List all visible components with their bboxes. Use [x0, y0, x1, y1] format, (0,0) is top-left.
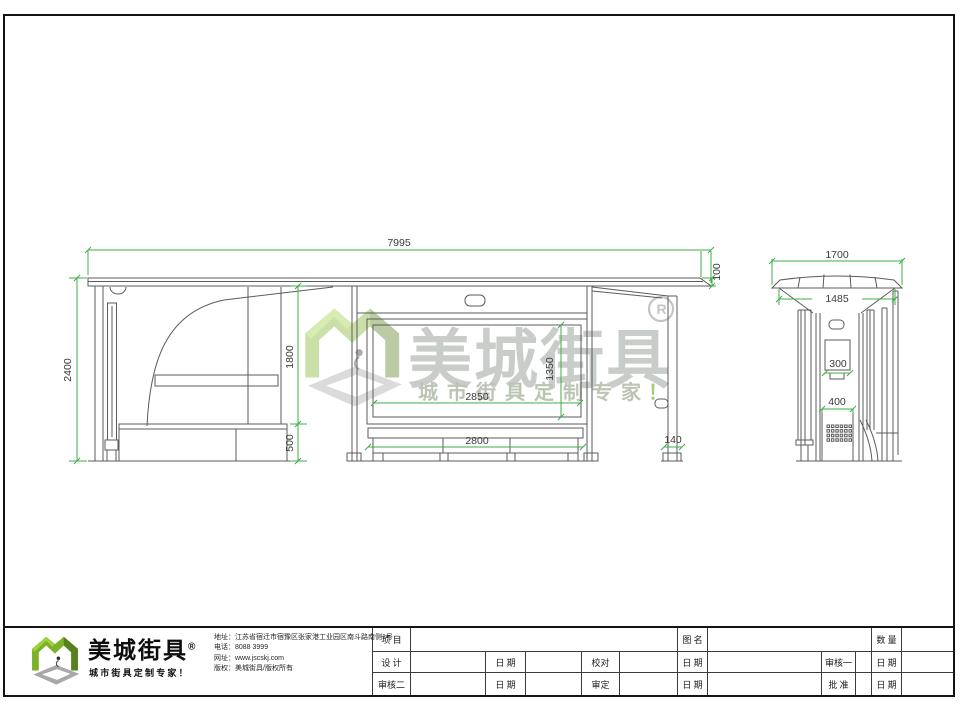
registered-trademark-icon: ® — [188, 641, 195, 652]
company-copyright: 版权：美城街具/版权所有 — [214, 664, 370, 674]
dim-side-base-width: 400 — [828, 396, 846, 408]
company-slogan: 城市街具定制专家！ — [89, 666, 190, 679]
titleblock-value-project — [411, 628, 678, 652]
dim-front-clear-height: 1800 — [284, 345, 296, 369]
dim-bench-width: 2800 — [465, 435, 489, 447]
drawing-sheet: 美城街具 R 城市街具定制专家 ！ — [0, 0, 960, 704]
dim-post-width: 140 — [664, 434, 682, 446]
titleblock-value-design — [411, 652, 486, 673]
copyright-label: 版权： — [214, 664, 235, 674]
dimension-lines — [69, 247, 905, 464]
titleblock-value-date-3 — [902, 652, 953, 673]
titleblock-label-project: 项 目 — [373, 628, 411, 652]
dim-side-body-width: 1485 — [825, 293, 849, 305]
titleblock-label-review-2: 审核二 — [373, 673, 411, 695]
address-label: 地址： — [214, 633, 235, 643]
company-logo — [28, 634, 82, 688]
titleblock-value-date-5 — [708, 673, 822, 695]
titleblock-value-review-1 — [856, 652, 872, 673]
titleblock-value-approval — [856, 673, 872, 695]
dim-ad-panel-width: 2850 — [465, 391, 489, 403]
titleblock-value-proofread — [620, 652, 678, 673]
company-brand-name: 美城街具® — [88, 631, 195, 665]
titleblock-value-quantity — [902, 628, 953, 652]
titleblock-label-review-1: 审核一 — [822, 652, 856, 673]
company-info: 地址：江苏省宿迁市宿豫区张家港工业园区南斗路南侧1号 电话：8088 3999 … — [214, 633, 370, 675]
website-value: www.jscskj.com — [235, 654, 284, 664]
titleblock-value-date-4 — [526, 673, 582, 695]
copyright-value: 美城街具/版权所有 — [235, 664, 293, 674]
dim-front-total-width: 7995 — [387, 237, 411, 249]
titleblock-value-drawing-name — [708, 628, 872, 652]
dim-front-base-height: 500 — [284, 434, 296, 452]
titleblock-label-approval: 批 准 — [822, 673, 856, 695]
title-block: 项 目 图 名 数 量 设 计 日 期 校对 日 期 审核一 日 期 审核二 日… — [372, 628, 953, 695]
titleblock-label-date-2: 日 期 — [678, 652, 708, 673]
titleblock-label-date-6: 日 期 — [872, 673, 902, 695]
titleblock-label-drawing-name: 图 名 — [678, 628, 708, 652]
titleblock-value-review-2 — [411, 673, 486, 695]
titleblock-label-date-4: 日 期 — [486, 673, 526, 695]
dim-front-total-height: 2400 — [62, 358, 74, 382]
cad-drawing: 7995 2400 1800 500 100 2850 1350 2800 14… — [0, 0, 960, 704]
titleblock-label-proofread: 校对 — [582, 652, 620, 673]
titleblock-label-approve-check: 审定 — [582, 673, 620, 695]
phone-label: 电话： — [214, 643, 235, 653]
company-website: 网址：www.jscskj.com — [214, 654, 370, 664]
titleblock-value-approve-check — [620, 673, 678, 695]
titleblock-label-date-5: 日 期 — [678, 673, 708, 695]
titleblock-label-quantity: 数 量 — [872, 628, 902, 652]
phone-value: 8088 3999 — [235, 643, 268, 653]
titleblock-label-date-3: 日 期 — [872, 652, 902, 673]
address-value: 江苏省宿迁市宿豫区张家港工业园区南斗路南侧1号 — [235, 633, 393, 643]
dimension-labels: 7995 2400 1800 500 100 2850 1350 2800 14… — [62, 237, 849, 452]
company-brand-text: 美城街具 — [88, 637, 188, 663]
titleblock-value-date-2 — [708, 652, 822, 673]
dim-side-roof-width: 1700 — [825, 249, 849, 261]
company-phone: 电话：8088 3999 — [214, 643, 370, 653]
company-address: 地址：江苏省宿迁市宿豫区张家港工业园区南斗路南侧1号 — [214, 633, 370, 643]
titleblock-label-design: 设 计 — [373, 652, 411, 673]
titleblock-value-date-6 — [902, 673, 953, 695]
dim-roof-edge-height: 100 — [711, 263, 723, 281]
dim-ad-panel-height: 1350 — [544, 357, 556, 381]
website-label: 网址： — [214, 654, 235, 664]
front-elevation — [88, 278, 711, 461]
titleblock-value-date-1 — [526, 652, 582, 673]
dim-side-panel-width: 300 — [829, 358, 847, 370]
titleblock-label-date-1: 日 期 — [486, 652, 526, 673]
